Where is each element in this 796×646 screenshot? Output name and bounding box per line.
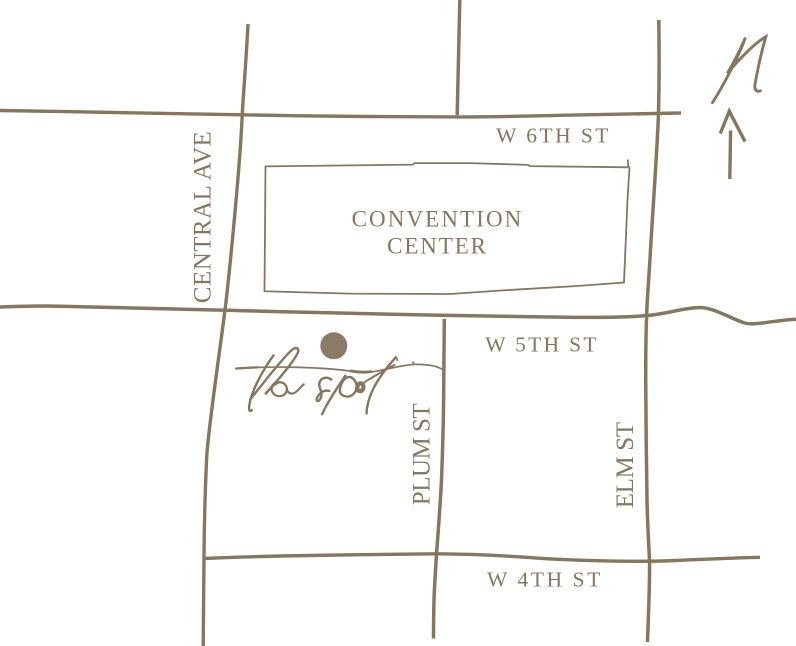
svg-text:W 4TH ST: W 4TH ST xyxy=(487,567,603,591)
svg-text:W 6TH ST: W 6TH ST xyxy=(496,124,611,148)
svg-text:CENTER: CENTER xyxy=(387,234,488,259)
svg-text:ELM ST: ELM ST xyxy=(612,422,639,508)
svg-text:CENTRAL AVE: CENTRAL AVE xyxy=(190,131,217,303)
svg-text:PLUM ST: PLUM ST xyxy=(409,404,436,506)
svg-text:W 5TH ST: W 5TH ST xyxy=(485,333,599,357)
svg-text:CONVENTION: CONVENTION xyxy=(352,206,524,231)
